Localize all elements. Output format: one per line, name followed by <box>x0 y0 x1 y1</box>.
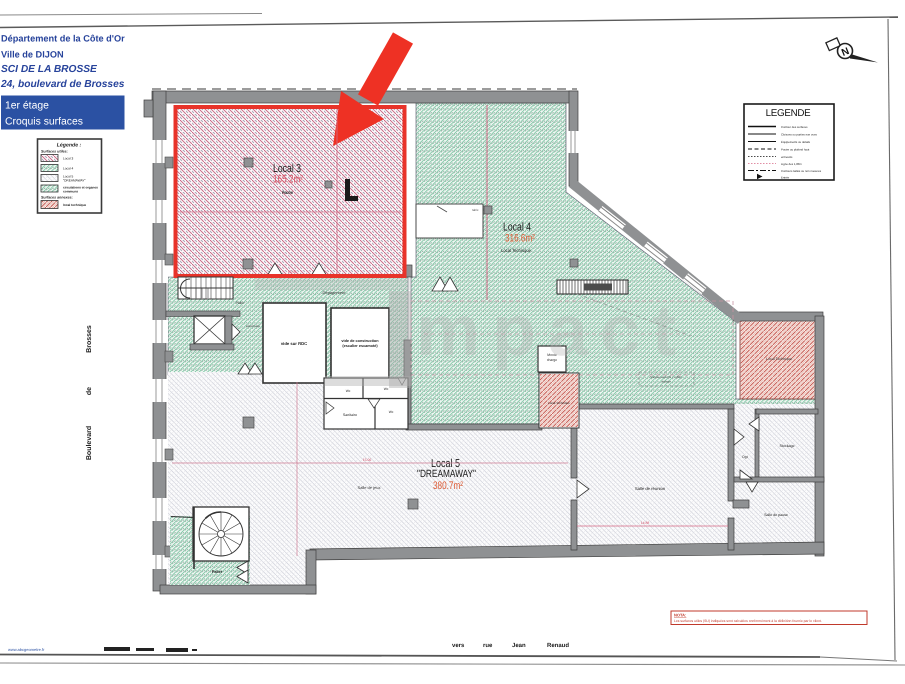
svg-text:mpact: mpact <box>416 291 688 371</box>
svg-text:Ville de DIJON: Ville de DIJON <box>1 49 64 59</box>
svg-text:de: de <box>85 387 93 395</box>
svg-text:"DREAMAWAY": "DREAMAWAY" <box>63 179 86 183</box>
svg-text:SCI DE LA BROSSE: SCI DE LA BROSSE <box>1 64 98 75</box>
svg-text:(escalier escamoté): (escalier escamoté) <box>342 344 378 348</box>
svg-text:Surface sous PH < 1,80m: Surface sous PH < 1,80m <box>650 375 683 379</box>
svg-text:Département de la Côte d'Or: Département de la Côte d'Or <box>1 34 125 44</box>
svg-text:local technique: local technique <box>63 203 86 207</box>
svg-text:Wc: Wc <box>346 389 351 393</box>
svg-text:table: table <box>472 208 479 212</box>
svg-text:Jean: Jean <box>512 642 526 649</box>
svg-text:380.7m²: 380.7m² <box>433 480 463 492</box>
svg-text:Légende :: Légende : <box>57 143 82 149</box>
svg-text:Poutre au plafond haut: Poutre au plafond haut <box>781 148 810 152</box>
svg-text:Salle de jeux: Salle de jeux <box>358 485 381 490</box>
svg-text:Salle de réunion: Salle de réunion <box>635 486 666 491</box>
svg-text:Palier: Palier <box>236 301 246 305</box>
svg-text:Poutre: Poutre <box>282 190 293 195</box>
svg-text:Palier: Palier <box>212 570 223 574</box>
svg-text:Ligne des 1,80m: Ligne des 1,80m <box>781 162 802 166</box>
svg-text:165.2m²: 165.2m² <box>273 174 303 186</box>
svg-text:Wc: Wc <box>389 410 394 414</box>
svg-text:Local Technique: Local Technique <box>501 248 531 253</box>
svg-text:15.95: 15.95 <box>288 270 297 274</box>
svg-text:entresols: entresols <box>781 155 793 159</box>
svg-text:Surfaces utiles:: Surfaces utiles: <box>41 150 69 154</box>
svg-text:Renaud: Renaud <box>547 642 569 649</box>
svg-text:vide de construction: vide de construction <box>341 339 379 343</box>
svg-text:LEGENDE: LEGENDE <box>766 108 811 119</box>
svg-text:Local Technique: Local Technique <box>766 357 792 361</box>
svg-text:Les surfaces utiles (SU) indiq: Les surfaces utiles (SU) indiquées sont … <box>674 619 822 623</box>
svg-text:Croquis surfaces: Croquis surfaces <box>5 116 83 127</box>
svg-text:Local 3: Local 3 <box>63 157 74 161</box>
svg-text:rue: rue <box>483 643 493 649</box>
svg-text:14.88: 14.88 <box>641 521 650 525</box>
svg-text:Salle de pause: Salle de pause <box>764 513 788 517</box>
svg-text:Entrée: Entrée <box>781 175 790 179</box>
svg-text:vide sur RDC: vide sur RDC <box>281 341 307 346</box>
svg-text:316.6m²: 316.6m² <box>505 232 535 244</box>
svg-text:Local 4: Local 4 <box>63 167 74 171</box>
svg-text:Sanitaire: Sanitaire <box>343 413 357 417</box>
svg-text:Contour des surfaces: Contour des surfaces <box>781 125 808 129</box>
svg-text:Local Technique: Local Technique <box>548 401 570 405</box>
svg-text:Contours taillés ou non mesuré: Contours taillés ou non mesurés <box>781 169 822 173</box>
svg-text:vers: vers <box>452 643 465 649</box>
svg-text:www.abcgeometre.fr: www.abcgeometre.fr <box>8 647 45 652</box>
svg-text:1er étage: 1er étage <box>5 101 49 112</box>
svg-text:24, boulevard de Brosses: 24, boulevard de Brosses <box>0 79 125 90</box>
svg-text:Stockage: Stockage <box>780 444 795 448</box>
svg-text:Brosses: Brosses <box>86 325 93 353</box>
svg-text:NOTA:: NOTA: <box>674 613 686 618</box>
svg-text:Surfaces annexes:: Surfaces annexes: <box>41 196 74 200</box>
svg-text:Dgt: Dgt <box>742 455 747 459</box>
svg-text:communs: communs <box>63 190 78 194</box>
svg-text:15.06: 15.06 <box>363 458 372 462</box>
svg-text:déduite: déduite <box>661 380 671 384</box>
svg-text:"DREAMAWAY": "DREAMAWAY" <box>417 468 476 480</box>
svg-text:Cloisons ou parties non vues: Cloisons ou parties non vues <box>781 133 818 137</box>
svg-text:Wc: Wc <box>384 387 389 391</box>
svg-text:Ascenseur: Ascenseur <box>246 324 260 328</box>
svg-text:Dégagement: Dégagement <box>323 290 347 295</box>
svg-text:Équipements ou détails: Équipements ou détails <box>781 140 811 144</box>
svg-text:Boulevard: Boulevard <box>85 426 93 460</box>
